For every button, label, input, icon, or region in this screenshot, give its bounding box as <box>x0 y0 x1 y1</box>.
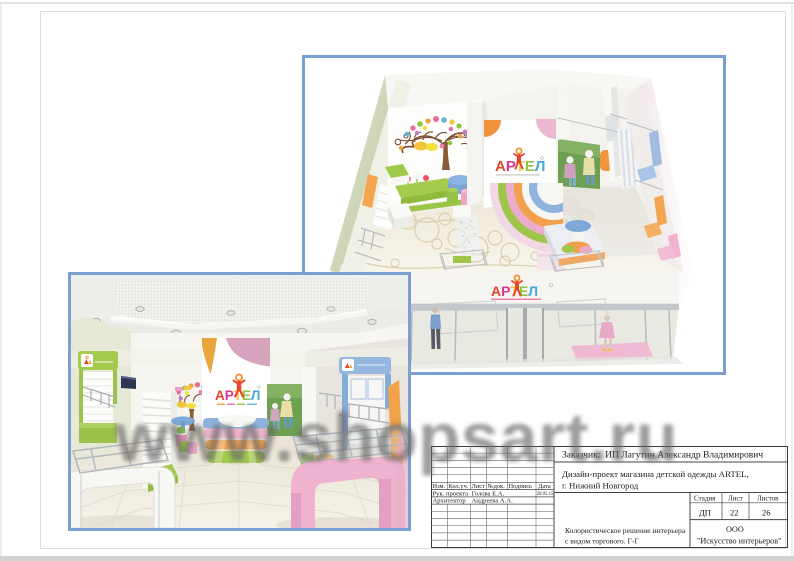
svg-text:Изм.: Изм. <box>433 483 446 490</box>
svg-text:Листов: Листов <box>757 495 779 503</box>
svg-text:Колористическое решение интерь: Колористическое решение интерьера <box>565 526 686 535</box>
svg-text:Рук. проекта: Рук. проекта <box>433 490 469 497</box>
svg-text:Заказчик: ИП Лагутин Александ: Заказчик: ИП Лагутин Александр Владимиро… <box>562 451 763 461</box>
svg-text:с видом торгового. Г-Г: с видом торгового. Г-Г <box>565 537 639 546</box>
svg-text:Лист: Лист <box>472 483 486 490</box>
svg-text:Лист: Лист <box>728 495 743 503</box>
svg-text:№док.: №док. <box>488 483 506 490</box>
svg-text:22: 22 <box>730 508 739 518</box>
svg-text:Кол.уч.: Кол.уч. <box>449 483 469 490</box>
svg-text:26: 26 <box>762 508 771 518</box>
svg-text:ДП: ДП <box>699 508 711 518</box>
svg-text:ООО: ООО <box>726 525 744 534</box>
svg-text:20.05.15.: 20.05.15. <box>537 492 555 497</box>
svg-text:г. Нижний Новгород: г. Нижний Новгород <box>562 481 639 491</box>
svg-text:Дизайн-проект магазина детской: Дизайн-проект магазина детской одежды AR… <box>562 469 749 479</box>
svg-text:"Искусство интерьеров": "Искусство интерьеров" <box>697 537 781 546</box>
svg-text:Андреева А.А.: Андреева А.А. <box>472 498 514 505</box>
svg-text:Подпись: Подпись <box>509 483 533 490</box>
svg-text:Стадия: Стадия <box>694 495 716 503</box>
svg-text:Голова Е.А.: Голова Е.А. <box>472 490 505 497</box>
svg-text:Дата: Дата <box>538 483 551 490</box>
svg-text:Архитектор: Архитектор <box>433 498 467 505</box>
